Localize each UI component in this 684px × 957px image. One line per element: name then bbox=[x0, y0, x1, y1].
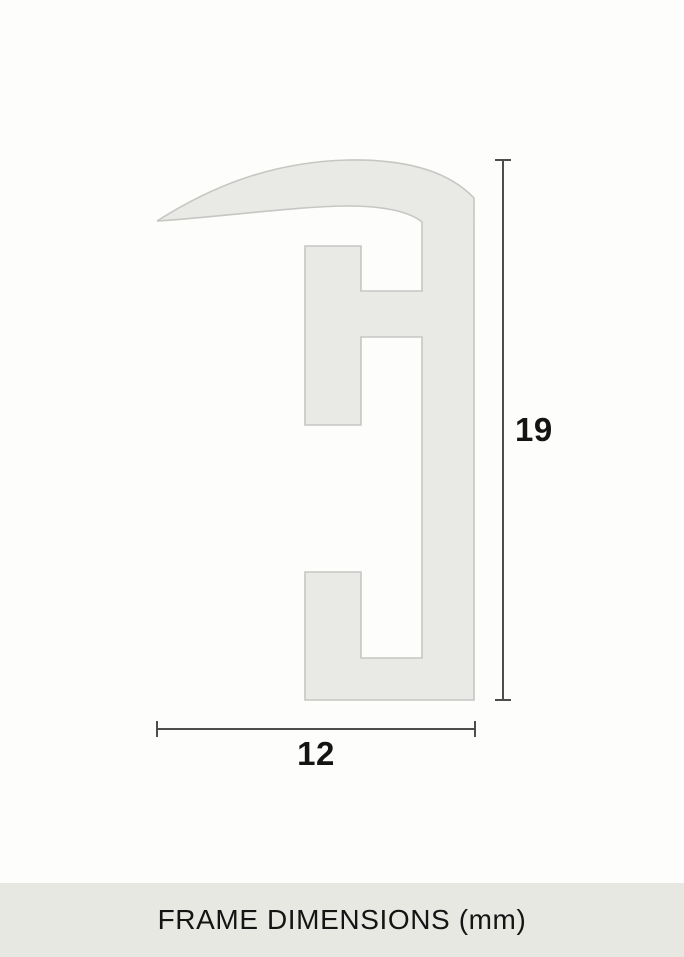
footer-caption: FRAME DIMENSIONS (mm) bbox=[158, 904, 527, 936]
profile-diagram-svg bbox=[0, 0, 684, 860]
height-dimension-line bbox=[495, 160, 511, 700]
frame-dimensions-page: 19 12 FRAME DIMENSIONS (mm) bbox=[0, 0, 684, 957]
footer-bar: FRAME DIMENSIONS (mm) bbox=[0, 883, 684, 957]
frame-profile-shape bbox=[157, 160, 474, 700]
width-dimension-label: 12 bbox=[276, 737, 356, 770]
height-dimension-label: 19 bbox=[515, 413, 553, 446]
